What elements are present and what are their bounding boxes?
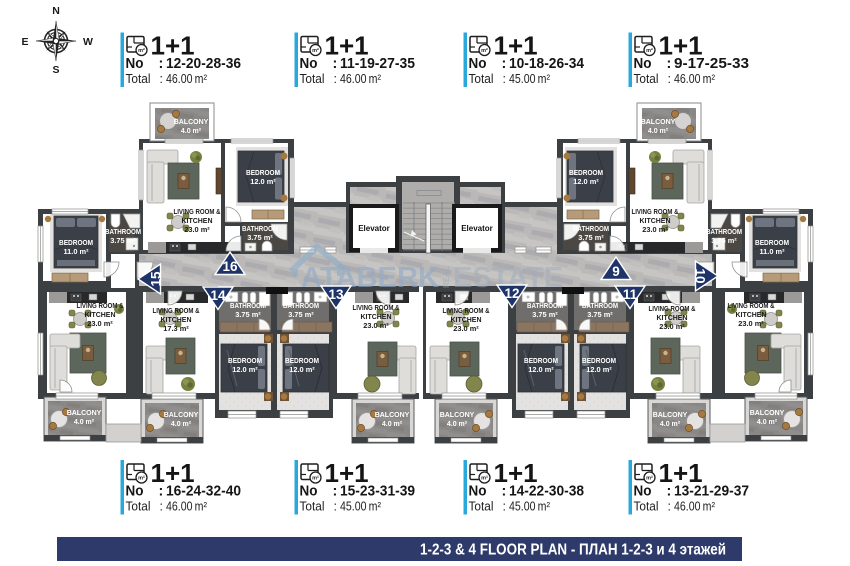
svg-text:No: No xyxy=(300,484,318,500)
svg-text::: : xyxy=(502,484,507,500)
svg-text::: : xyxy=(503,72,506,86)
svg-text:15-23-31-39: 15-23-31-39 xyxy=(340,484,415,500)
svg-text:12.0 m²: 12.0 m² xyxy=(250,177,276,186)
svg-text:m²: m² xyxy=(138,47,145,54)
svg-text:No: No xyxy=(634,56,652,72)
svg-text:4.0 m²: 4.0 m² xyxy=(660,421,681,428)
svg-text:10-18-26-34: 10-18-26-34 xyxy=(509,56,584,72)
svg-text:BEDROOM: BEDROOM xyxy=(228,356,262,365)
svg-text::: : xyxy=(333,484,338,500)
svg-text:13-21-29-37: 13-21-29-37 xyxy=(674,484,749,500)
svg-text:BALCONY: BALCONY xyxy=(653,412,688,419)
svg-text:45.00 m²: 45.00 m² xyxy=(509,72,550,86)
svg-text:N: N xyxy=(52,5,60,17)
svg-text:LIVING ROOM &: LIVING ROOM & xyxy=(77,301,125,310)
svg-text::: : xyxy=(667,56,672,72)
svg-text:3.75 m²: 3.75 m² xyxy=(532,310,558,319)
svg-text:KITCHEN: KITCHEN xyxy=(182,216,213,225)
svg-text:Total: Total xyxy=(126,72,151,86)
svg-text:BATHROOM: BATHROOM xyxy=(582,301,618,310)
svg-text:W: W xyxy=(83,36,93,48)
svg-text:23.0 m²: 23.0 m² xyxy=(738,319,764,328)
svg-text:LIVING ROOM &: LIVING ROOM & xyxy=(153,306,201,315)
svg-text:3.75 m²: 3.75 m² xyxy=(578,233,604,242)
svg-text:9: 9 xyxy=(612,264,620,279)
svg-text:BALCONY: BALCONY xyxy=(750,410,785,417)
svg-text:23.0 m²: 23.0 m² xyxy=(184,225,210,234)
svg-text:KITCHEN: KITCHEN xyxy=(361,312,392,321)
svg-text:LIVING ROOM &: LIVING ROOM & xyxy=(728,301,776,310)
svg-text:BALCONY: BALCONY xyxy=(164,412,199,419)
svg-text::: : xyxy=(503,500,506,514)
svg-text::: : xyxy=(160,500,163,514)
svg-text:4.0 m²: 4.0 m² xyxy=(757,419,778,426)
svg-text:Total: Total xyxy=(469,500,494,514)
svg-text:12.0 m²: 12.0 m² xyxy=(232,365,258,374)
svg-text:LIVING ROOM &: LIVING ROOM & xyxy=(174,207,222,216)
svg-text:KITCHEN: KITCHEN xyxy=(451,315,482,324)
svg-text:11.0 m²: 11.0 m² xyxy=(759,247,785,256)
svg-text::: : xyxy=(160,72,163,86)
svg-text:23.0 m²: 23.0 m² xyxy=(453,324,479,333)
svg-text:17.3 m²: 17.3 m² xyxy=(163,324,189,333)
svg-text:Total: Total xyxy=(469,72,494,86)
svg-text:KITCHEN: KITCHEN xyxy=(640,216,671,225)
svg-text:BEDROOM: BEDROOM xyxy=(285,356,319,365)
svg-text:BATHROOM: BATHROOM xyxy=(242,224,278,233)
svg-text:BALCONY: BALCONY xyxy=(174,119,209,126)
svg-text:BALCONY: BALCONY xyxy=(375,412,410,419)
svg-text:Total: Total xyxy=(126,500,151,514)
svg-text:46.00 m²: 46.00 m² xyxy=(674,72,715,86)
svg-text:12.0 m²: 12.0 m² xyxy=(586,365,612,374)
svg-text:No: No xyxy=(126,56,144,72)
svg-text:BEDROOM: BEDROOM xyxy=(246,168,280,177)
svg-text:12: 12 xyxy=(504,286,519,301)
svg-text:16: 16 xyxy=(222,259,238,274)
svg-text:BEDROOM: BEDROOM xyxy=(59,238,93,247)
svg-text:4.0 m²: 4.0 m² xyxy=(181,128,202,135)
svg-text:23.0 m²: 23.0 m² xyxy=(659,322,685,331)
svg-text:LIVING ROOM &: LIVING ROOM & xyxy=(353,303,401,312)
svg-text::: : xyxy=(667,484,672,500)
svg-text:m²: m² xyxy=(481,475,488,482)
svg-text:KITCHEN: KITCHEN xyxy=(85,310,116,319)
svg-text:No: No xyxy=(300,56,318,72)
svg-text:BALCONY: BALCONY xyxy=(67,410,102,417)
svg-text:No: No xyxy=(469,56,487,72)
svg-text:46.00 m²: 46.00 m² xyxy=(166,72,207,86)
svg-text:Total: Total xyxy=(634,72,659,86)
svg-text:45.00 m²: 45.00 m² xyxy=(340,500,381,514)
svg-text:23.0 m²: 23.0 m² xyxy=(87,319,113,328)
svg-text:BEDROOM: BEDROOM xyxy=(755,238,789,247)
svg-text:BATHROOM: BATHROOM xyxy=(527,301,563,310)
svg-text:14-22-30-38: 14-22-30-38 xyxy=(509,484,584,500)
svg-text:m²: m² xyxy=(138,475,145,482)
svg-text:16-24-32-40: 16-24-32-40 xyxy=(166,484,241,500)
svg-text:BATHROOM: BATHROOM xyxy=(283,301,319,310)
svg-text:BATHROOM: BATHROOM xyxy=(573,224,609,233)
svg-text:Total: Total xyxy=(300,500,325,514)
svg-text:4.0 m²: 4.0 m² xyxy=(74,419,95,426)
svg-text:3.75 m²: 3.75 m² xyxy=(587,310,613,319)
svg-text:13: 13 xyxy=(328,287,344,302)
svg-text:Elevator: Elevator xyxy=(461,224,493,233)
svg-text:12.0 m²: 12.0 m² xyxy=(528,365,554,374)
svg-text:BEDROOM: BEDROOM xyxy=(582,356,616,365)
svg-text:9-17-25-33: 9-17-25-33 xyxy=(674,56,749,72)
svg-text:12.0 m²: 12.0 m² xyxy=(573,177,599,186)
svg-text::: : xyxy=(668,500,671,514)
svg-text:46.00 m²: 46.00 m² xyxy=(166,500,207,514)
svg-text:3.75 m²: 3.75 m² xyxy=(235,310,261,319)
svg-text:11.0 m²: 11.0 m² xyxy=(63,247,89,256)
svg-text:23.0 m²: 23.0 m² xyxy=(363,321,389,330)
svg-text:BALCONY: BALCONY xyxy=(440,412,475,419)
svg-text::: : xyxy=(159,56,164,72)
svg-text:BATHROOM: BATHROOM xyxy=(706,227,742,236)
svg-text:12-20-28-36: 12-20-28-36 xyxy=(166,56,241,72)
svg-text:Elevator: Elevator xyxy=(358,224,390,233)
svg-text:Total: Total xyxy=(634,500,659,514)
svg-text:No: No xyxy=(634,484,652,500)
svg-text:E: E xyxy=(21,36,28,48)
svg-text:m²: m² xyxy=(312,475,319,482)
svg-text::: : xyxy=(334,72,337,86)
svg-text::: : xyxy=(334,500,337,514)
svg-text:KITCHEN: KITCHEN xyxy=(161,315,192,324)
svg-text:11-19-27-35: 11-19-27-35 xyxy=(340,56,415,72)
svg-text:46.00 m²: 46.00 m² xyxy=(340,72,381,86)
svg-text:3.75 m²: 3.75 m² xyxy=(247,233,273,242)
svg-text:3.75 m²: 3.75 m² xyxy=(288,310,314,319)
svg-text:15: 15 xyxy=(149,271,164,287)
svg-text:KITCHEN: KITCHEN xyxy=(736,310,767,319)
svg-text:10: 10 xyxy=(693,268,708,283)
svg-text:46.00 m²: 46.00 m² xyxy=(674,500,715,514)
svg-text::: : xyxy=(333,56,338,72)
svg-text:1-2-3 & 4 FLOOR PLAN - ПЛАН 1-: 1-2-3 & 4 FLOOR PLAN - ПЛАН 1-2-3 и 4 эт… xyxy=(420,542,726,559)
svg-text:REAL: REAL xyxy=(442,266,451,288)
svg-text:23.0 m²: 23.0 m² xyxy=(642,225,668,234)
svg-text:45.00 m²: 45.00 m² xyxy=(509,500,550,514)
svg-text:Total: Total xyxy=(300,72,325,86)
svg-text:11: 11 xyxy=(623,287,638,302)
svg-text::: : xyxy=(159,484,164,500)
svg-text:3.75 m²: 3.75 m² xyxy=(711,236,737,245)
svg-text:No: No xyxy=(469,484,487,500)
svg-text:BATHROOM: BATHROOM xyxy=(230,301,266,310)
svg-text:BATHROOM: BATHROOM xyxy=(105,227,141,236)
svg-text:LIVING ROOM &: LIVING ROOM & xyxy=(443,306,491,315)
svg-text:4.0 m²: 4.0 m² xyxy=(382,421,403,428)
svg-text:S: S xyxy=(52,64,59,76)
svg-text:4.0 m²: 4.0 m² xyxy=(648,128,669,135)
svg-text:3.75 m²: 3.75 m² xyxy=(110,236,136,245)
svg-text::: : xyxy=(502,56,507,72)
svg-text:No: No xyxy=(126,484,144,500)
svg-text:4.0 m²: 4.0 m² xyxy=(171,421,192,428)
svg-text:LIVING ROOM &: LIVING ROOM & xyxy=(632,207,680,216)
svg-text:KITCHEN: KITCHEN xyxy=(657,313,688,322)
svg-text:m²: m² xyxy=(312,47,319,54)
svg-text:m²: m² xyxy=(646,475,653,482)
svg-text:m²: m² xyxy=(646,47,653,54)
svg-text:ATABERK: ATABERK xyxy=(301,262,439,294)
svg-text:12.0 m²: 12.0 m² xyxy=(289,365,315,374)
svg-text:BEDROOM: BEDROOM xyxy=(569,168,603,177)
svg-text:14: 14 xyxy=(210,288,226,303)
svg-text:BALCONY: BALCONY xyxy=(641,119,676,126)
svg-text:LIVING ROOM &: LIVING ROOM & xyxy=(649,304,697,313)
svg-text:BEDROOM: BEDROOM xyxy=(524,356,558,365)
svg-text:m²: m² xyxy=(481,47,488,54)
svg-text:4.0 m²: 4.0 m² xyxy=(447,421,468,428)
svg-text::: : xyxy=(668,72,671,86)
